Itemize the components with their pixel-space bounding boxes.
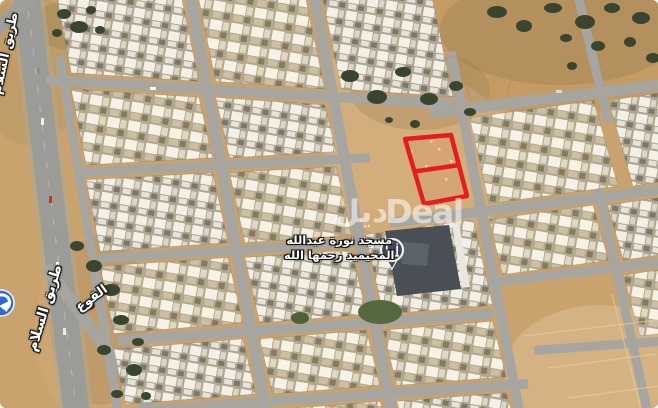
garden [291,312,309,324]
mosque-label-line1: مسجد نورة عبدالله [284,233,394,248]
mosque-label: مسجد نورة عبدالله المحيميد رحمها الله [284,233,394,263]
mosque-label-line2: المحيميد رحمها الله [284,248,394,263]
satellite-imagery [0,0,658,408]
garden [358,300,402,324]
satellite-map[interactable]: طريق السلام طريق السلام القوع مسجد نورة … [0,0,658,408]
